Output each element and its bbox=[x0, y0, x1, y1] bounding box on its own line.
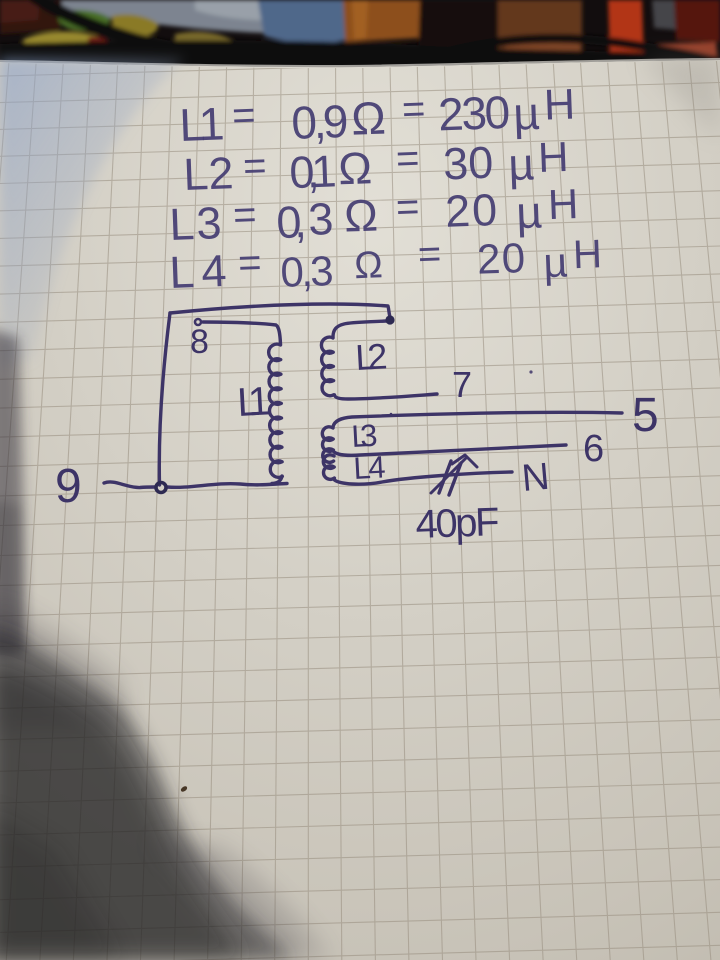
svg-text:40pF: 40pF bbox=[415, 500, 500, 547]
svg-text:L2: L2 bbox=[182, 147, 234, 200]
svg-text:=: = bbox=[237, 241, 262, 286]
svg-text:L4: L4 bbox=[353, 449, 387, 486]
svg-text:9: 9 bbox=[55, 460, 82, 513]
svg-text:µ: µ bbox=[507, 138, 535, 190]
svg-text:Ω: Ω bbox=[350, 91, 386, 144]
svg-text:=: = bbox=[231, 93, 256, 138]
svg-text:H: H bbox=[547, 180, 579, 228]
svg-text:L1: L1 bbox=[178, 97, 225, 151]
svg-text:=: = bbox=[232, 193, 257, 238]
svg-text:30: 30 bbox=[442, 137, 494, 190]
svg-text:H: H bbox=[572, 232, 602, 277]
svg-text:230: 230 bbox=[437, 86, 511, 141]
svg-text:Ω: Ω bbox=[343, 189, 378, 241]
svg-text:=: = bbox=[242, 144, 267, 189]
svg-text:N: N bbox=[520, 456, 551, 500]
svg-text:=: = bbox=[395, 185, 420, 230]
svg-text:µ: µ bbox=[542, 238, 568, 286]
svg-text:3: 3 bbox=[307, 193, 334, 245]
svg-text:µ: µ bbox=[512, 87, 540, 140]
svg-text:H: H bbox=[537, 133, 569, 181]
svg-text:L2: L2 bbox=[354, 335, 388, 378]
svg-text:0,1: 0,1 bbox=[288, 145, 337, 198]
svg-text:L1: L1 bbox=[236, 379, 271, 425]
svg-text:L3: L3 bbox=[351, 418, 379, 454]
svg-text:Ω: Ω bbox=[354, 244, 384, 287]
svg-text:8: 8 bbox=[190, 323, 209, 361]
svg-text:Ω: Ω bbox=[337, 142, 372, 194]
svg-text:=: = bbox=[401, 87, 426, 132]
svg-text:=: = bbox=[395, 136, 420, 181]
svg-text:µ: µ bbox=[515, 186, 543, 238]
svg-text:5: 5 bbox=[632, 389, 659, 442]
svg-text:0,: 0, bbox=[275, 196, 307, 248]
svg-text:H: H bbox=[543, 81, 576, 130]
svg-text:7: 7 bbox=[452, 364, 472, 405]
svg-text:=: = bbox=[417, 232, 442, 277]
svg-text:0,3: 0,3 bbox=[280, 247, 335, 296]
svg-text:0,9: 0,9 bbox=[290, 95, 349, 149]
svg-text:6: 6 bbox=[583, 428, 604, 470]
